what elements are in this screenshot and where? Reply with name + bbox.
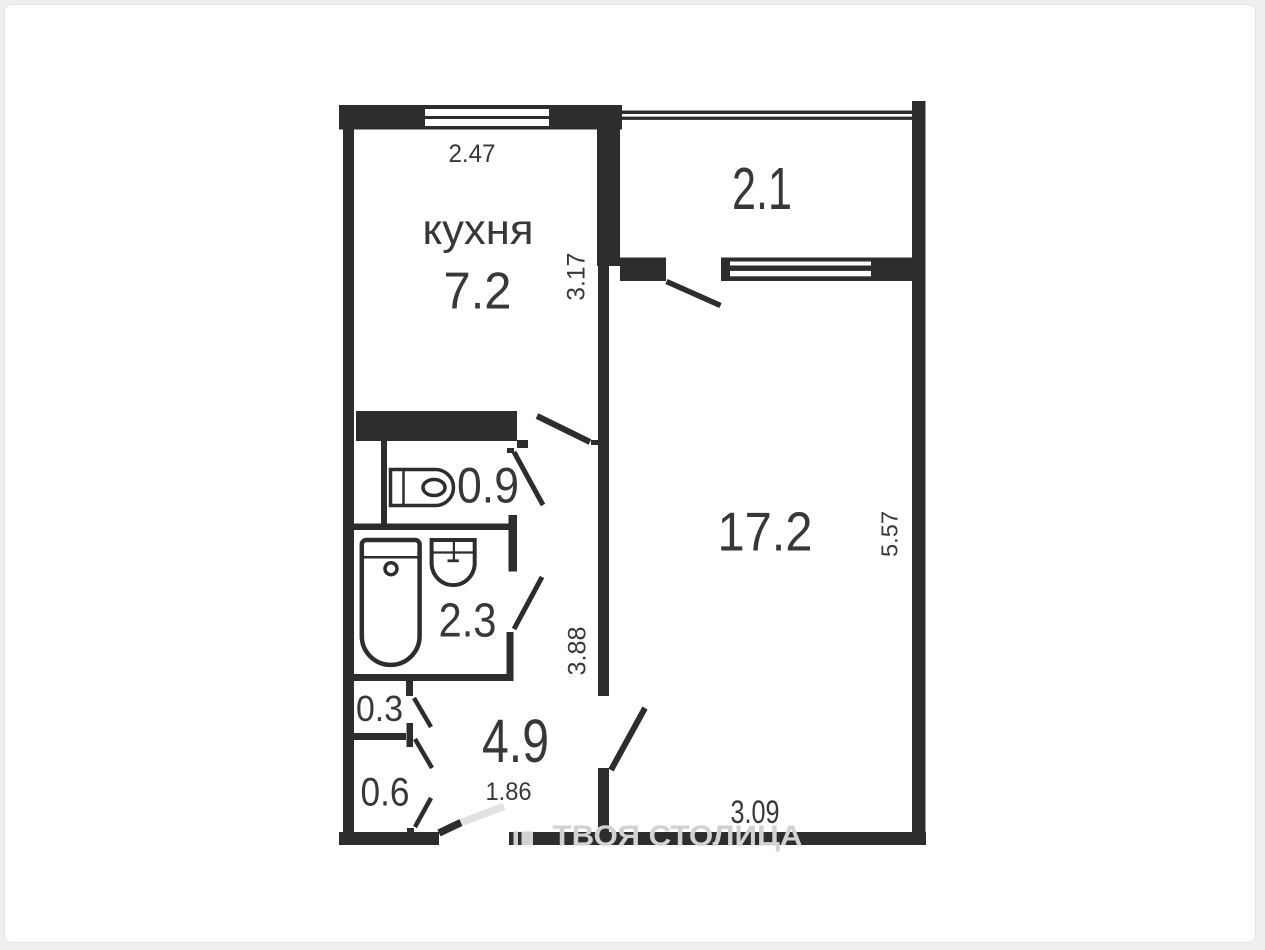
svg-text:17.2: 17.2: [718, 501, 813, 563]
svg-text:ТВОЯ СТОЛИЦА: ТВОЯ СТОЛИЦА: [553, 821, 803, 853]
svg-text:0.6: 0.6: [361, 771, 410, 815]
svg-text:2.3: 2.3: [439, 595, 497, 648]
svg-text:5.57: 5.57: [877, 511, 903, 557]
svg-text:4.9: 4.9: [482, 707, 549, 775]
svg-text:3.88: 3.88: [564, 627, 592, 676]
svg-text:0.3: 0.3: [356, 688, 403, 729]
svg-text:0.9: 0.9: [457, 458, 519, 514]
svg-text:7.2: 7.2: [444, 263, 512, 321]
svg-text:3.17: 3.17: [563, 253, 591, 301]
svg-text:2.47: 2.47: [449, 140, 496, 168]
svg-text:2.1: 2.1: [732, 156, 792, 222]
svg-text:кухня: кухня: [423, 206, 534, 254]
svg-text:1.86: 1.86: [486, 778, 532, 806]
